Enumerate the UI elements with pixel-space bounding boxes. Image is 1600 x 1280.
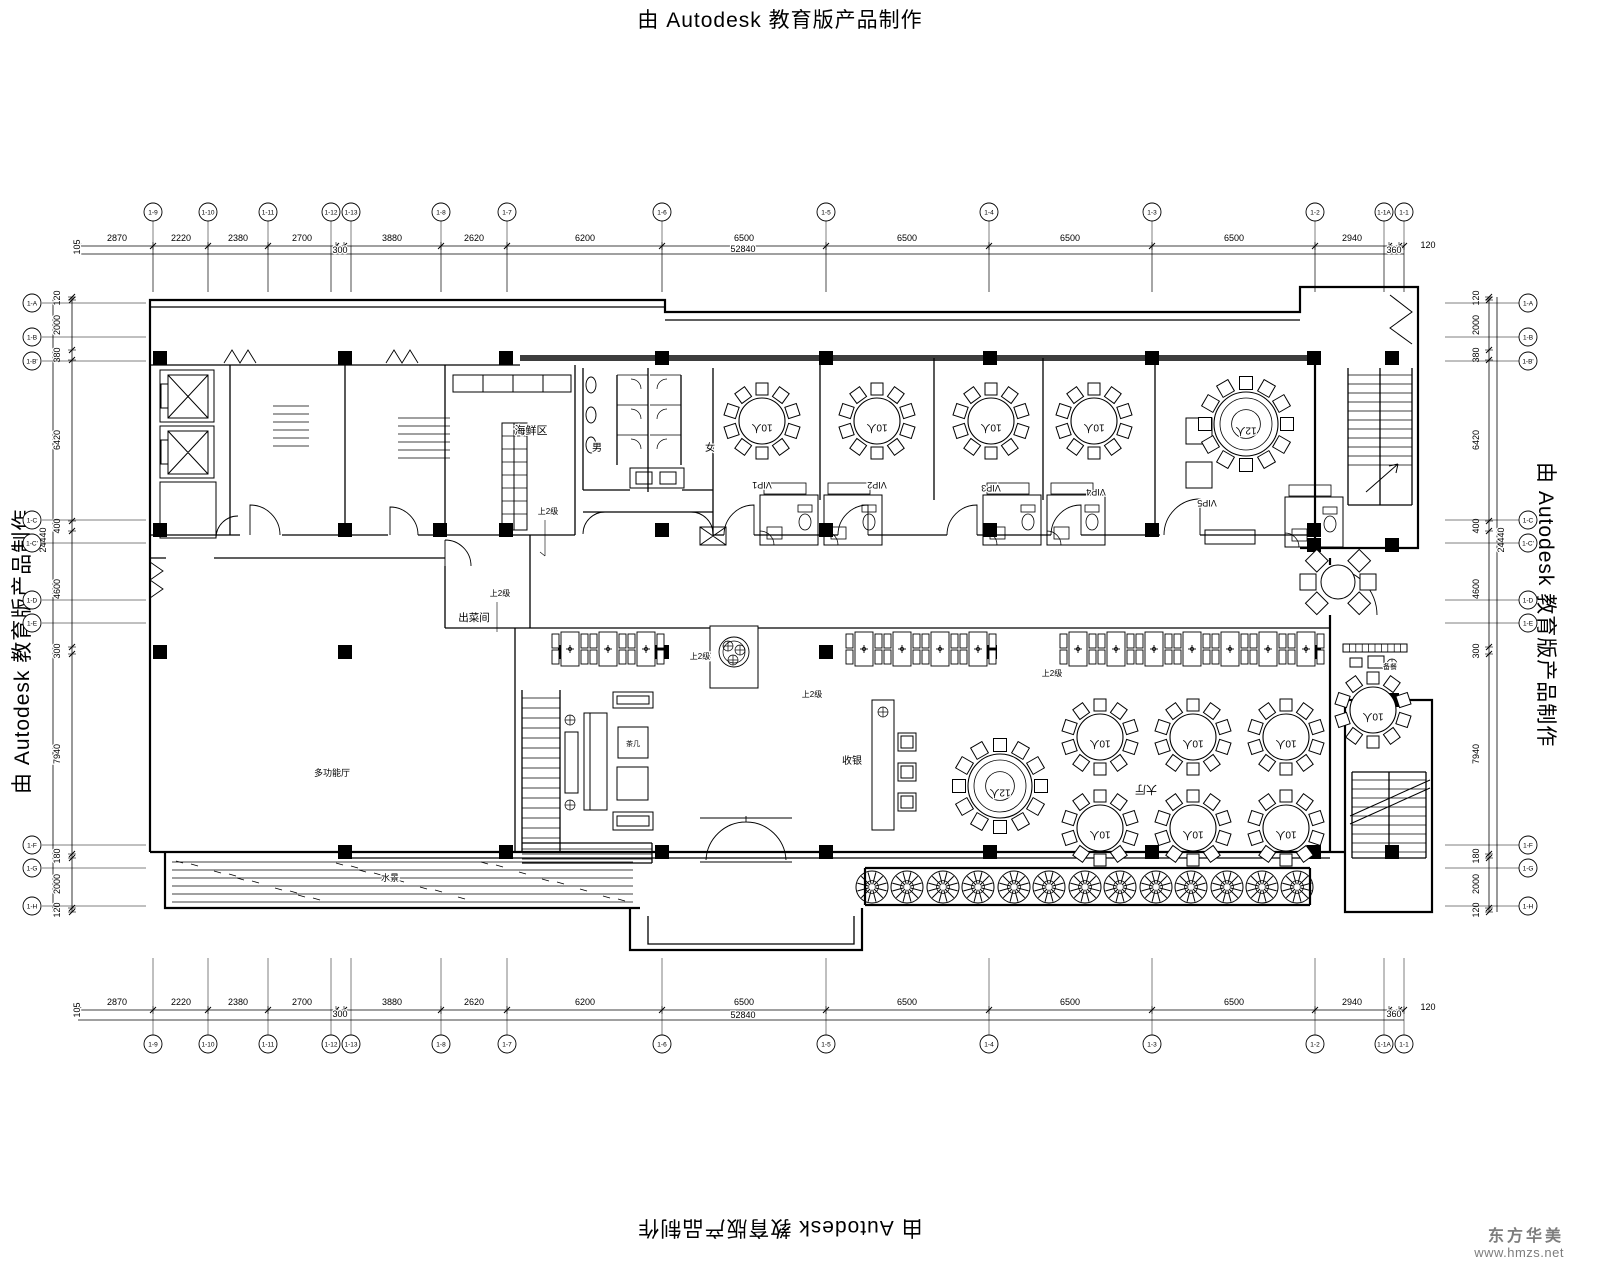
chair (850, 387, 867, 404)
room-label: VIP5 (1197, 498, 1217, 508)
dim-label: 2000 (1471, 874, 1481, 894)
chair (1155, 720, 1170, 735)
chair (1027, 757, 1045, 775)
axis-bubble-label: 1-F (1523, 842, 1533, 849)
axis-bubble-label: 1-8 (436, 1041, 446, 1048)
chair (1396, 712, 1411, 727)
dim-label: 120 (1420, 1002, 1435, 1012)
tree-icon (892, 888, 904, 891)
tree-icon (1223, 872, 1226, 884)
dim-label: 6500 (1060, 997, 1080, 1007)
room-label: VIP2 (867, 480, 887, 490)
tree-icon (1141, 883, 1153, 886)
room-label: 水景 (381, 872, 399, 883)
tree-icon (1079, 881, 1092, 894)
dim-label: 2000 (1471, 315, 1481, 335)
tree-icon (1086, 890, 1089, 902)
room-label: 出菜间 (458, 611, 490, 624)
chair (964, 439, 981, 456)
chair (1012, 742, 1030, 760)
tree-icon (946, 888, 958, 891)
chair (1110, 794, 1127, 811)
chair (1296, 703, 1313, 720)
chair (850, 439, 867, 456)
tree-icon (1293, 890, 1296, 902)
room-label: 上2级 (690, 651, 710, 661)
tree-icon (1105, 883, 1117, 886)
chair (1117, 404, 1132, 419)
chair (1187, 763, 1199, 775)
tree-icon (1212, 883, 1224, 886)
tree-icon (981, 888, 993, 891)
tree-icon (1016, 876, 1025, 885)
room-label: 男 (592, 442, 602, 454)
toilet-icon (1323, 507, 1337, 514)
cad-sheet-page: { "watermarks": { "top": "由 Autodesk 教育版… (0, 0, 1600, 1280)
column (1307, 351, 1321, 365)
tree-icon (1121, 890, 1124, 902)
column (153, 645, 167, 659)
tree-icon (1050, 890, 1053, 902)
water-ripple (351, 866, 358, 868)
tree-icon (1010, 872, 1013, 884)
tree-icon (903, 890, 906, 902)
tree-icon (1050, 872, 1053, 884)
tree-icon (1230, 888, 1242, 891)
table-capacity-label: 12人 (1235, 425, 1256, 437)
tree-icon (1187, 872, 1190, 884)
tree-icon (1123, 888, 1135, 891)
booth-bench (1279, 650, 1286, 664)
tree-icon (1157, 890, 1160, 902)
dim-total-label: 24440 (1496, 527, 1506, 552)
chair (1062, 830, 1077, 845)
room-label: VIP3 (981, 483, 1001, 493)
dim-label: 120 (1420, 240, 1435, 250)
axis-bubble-label: 1-12 (324, 1041, 337, 1048)
booth-bench (875, 634, 882, 648)
chair (785, 423, 800, 438)
toilet-icon (1086, 514, 1098, 530)
dim-label: 6500 (734, 233, 754, 243)
booth-bench (1212, 634, 1219, 648)
tree-icon (1152, 890, 1155, 902)
booth-bench (960, 634, 967, 648)
tree-icon (892, 883, 904, 886)
chair (1280, 699, 1292, 711)
booth-bench (1174, 634, 1181, 648)
axis-bubble-label: 1-8 (436, 209, 446, 216)
tree-icon (1265, 883, 1277, 886)
axis-bubble-label: 1-13 (344, 209, 357, 216)
booth-bench (1060, 634, 1067, 648)
axis-bubble-label: 1-11 (262, 209, 275, 216)
chair (1259, 794, 1276, 811)
tree-icon (1081, 872, 1084, 884)
dining-table (1170, 805, 1216, 851)
tree-icon (1033, 871, 1065, 903)
chair (1110, 703, 1127, 720)
axis-bubble-label: 1-11 (262, 1041, 275, 1048)
stall-door (631, 409, 641, 419)
toilet-icon (1324, 516, 1336, 532)
chair (1104, 387, 1121, 404)
chair (839, 404, 854, 419)
dim-label: 120 (1471, 902, 1481, 917)
axis-bubble-label: 1-D (1523, 597, 1534, 604)
axis-bubble-label: 1-A (27, 300, 38, 307)
dim-label: 180 (52, 848, 62, 863)
chair (1217, 451, 1235, 469)
tree-icon (1192, 890, 1195, 902)
chair (971, 742, 989, 760)
chair (1073, 846, 1090, 863)
chair (1166, 755, 1183, 772)
chair (1367, 672, 1379, 684)
dining-table (739, 398, 785, 444)
tree-icon (1282, 888, 1294, 891)
room-label: 海鲜区 (515, 423, 548, 437)
toilet-icon (1021, 505, 1035, 512)
axis-bubble-label: 1-7 (502, 1041, 512, 1048)
dim-label: 7940 (52, 744, 62, 764)
booth-bench (1136, 634, 1143, 648)
dining-table (1350, 687, 1396, 733)
dining-table (1214, 392, 1278, 456)
axis-bubble-label: 1-1 (1399, 209, 1409, 216)
axis-bubble-label: 1-H (1523, 903, 1534, 910)
chair (1166, 703, 1183, 720)
booth-bench (1250, 650, 1257, 664)
column (499, 523, 513, 537)
axis-bubble-label: 1-1 (1399, 1041, 1409, 1048)
chair (1012, 813, 1030, 831)
tree-icon (1069, 871, 1101, 903)
tree-icon (1052, 888, 1064, 891)
chair (1123, 739, 1138, 754)
dim-label: 2380 (228, 997, 248, 1007)
chair (1187, 699, 1199, 711)
dim-label: 400 (1471, 518, 1481, 533)
booth-bench (989, 634, 996, 648)
chair (1001, 439, 1018, 456)
water-ripple (290, 891, 297, 893)
chair (1203, 703, 1220, 720)
chair (1335, 693, 1350, 708)
waiting-table (1321, 565, 1355, 599)
tree-icon (1034, 888, 1046, 891)
tree-icon (1003, 889, 1012, 898)
booth-bench (619, 650, 626, 664)
room-label: VIP1 (752, 480, 772, 490)
booth-bench (1127, 650, 1134, 664)
heavy-wall (520, 355, 1310, 361)
tree-icon (1051, 876, 1060, 885)
dim-label: 300 (332, 1009, 347, 1019)
tree-icon (1152, 872, 1155, 884)
dim-label: 2940 (1342, 997, 1362, 1007)
chair (1088, 447, 1100, 459)
dim-label: 2220 (171, 997, 191, 1007)
tree-icon (1017, 888, 1029, 891)
chair (900, 404, 915, 419)
booth-bench (913, 650, 920, 664)
dim-label: 300 (332, 245, 347, 255)
axis-bubble-label: 1-D (27, 597, 38, 604)
dim-label: 6500 (734, 997, 754, 1007)
chair (1062, 811, 1077, 826)
tree-icon (1109, 876, 1118, 885)
axis-bubble-label: 1-3 (1147, 209, 1157, 216)
dim-label: 2380 (228, 233, 248, 243)
tree-icon (1281, 871, 1313, 903)
toilet-icon (1085, 505, 1099, 512)
water-ripple (374, 873, 381, 875)
dim-label: 380 (52, 347, 62, 362)
dim-label: 3880 (382, 997, 402, 1007)
tree-icon (1293, 872, 1296, 884)
water-ripple (252, 881, 259, 883)
dim-label: 120 (52, 902, 62, 917)
dim-label: 6200 (575, 997, 595, 1007)
tree-icon (1299, 876, 1308, 885)
tree-icon (1038, 889, 1047, 898)
tree-icon (980, 889, 989, 898)
chair (994, 821, 1007, 834)
booth-bench (951, 650, 958, 664)
tree-icon (1286, 876, 1295, 885)
chair (953, 423, 968, 438)
tree-icon (1264, 889, 1273, 898)
room-label: 上2级 (802, 689, 822, 699)
tree-icon (874, 889, 883, 898)
toilet-icon (798, 505, 812, 512)
room-label: 多功能厅 (314, 767, 350, 778)
booth-bench (1288, 650, 1295, 664)
column (1385, 538, 1399, 552)
column (819, 845, 833, 859)
water-ripple (435, 890, 442, 892)
tree-icon (1086, 872, 1089, 884)
dining-table (1263, 714, 1309, 760)
tree-icon (1265, 888, 1277, 891)
tree-icon (963, 883, 975, 886)
tree-icon (1175, 871, 1207, 903)
dim-label: 2870 (107, 997, 127, 1007)
tree-icon (939, 890, 942, 902)
axis-bubble-label: 1-F (27, 842, 37, 849)
stall-door (657, 379, 667, 389)
chair (756, 383, 768, 395)
tree-icon (896, 889, 905, 898)
tree-icon (927, 871, 959, 903)
tree-icon (974, 890, 977, 902)
axis-bubble-label: 1-C (1523, 517, 1534, 524)
tree-icon (1045, 872, 1048, 884)
room-label: 女 (705, 441, 715, 454)
booth-bench (1212, 650, 1219, 664)
tree-icon (1229, 889, 1238, 898)
column (1385, 351, 1399, 365)
tree-icon (873, 872, 876, 884)
axis-bubble-label: 1-C' (26, 540, 38, 547)
tree-icon (1251, 889, 1260, 898)
water-ripple (618, 899, 625, 901)
chair (1248, 739, 1263, 754)
chair (772, 439, 789, 456)
water-ripple (313, 898, 320, 900)
tree-icon (1017, 883, 1029, 886)
chair (1309, 720, 1324, 735)
chair (971, 813, 989, 831)
chair (1073, 794, 1090, 811)
booth-bench (657, 650, 664, 664)
booth-bench (913, 634, 920, 648)
chair (1202, 436, 1220, 454)
chair (1014, 423, 1029, 438)
chair (1062, 720, 1077, 735)
chair (724, 423, 739, 438)
tree-icon (1070, 883, 1082, 886)
booth-bench (1203, 650, 1210, 664)
room-label: 上2级 (1042, 668, 1062, 678)
axis-bubble-label: 1-B (1523, 334, 1533, 341)
tree-icon (1008, 881, 1021, 894)
axis-bubble-label: 1-1A (1377, 209, 1391, 216)
table-capacity-label: 10人 (1083, 422, 1104, 434)
water-ripple (542, 879, 549, 881)
table-capacity-label: 10人 (751, 422, 772, 434)
chair (1367, 736, 1379, 748)
tree-icon (1192, 872, 1195, 884)
booth-bench (619, 634, 626, 648)
dim-total-label: 52840 (730, 244, 755, 254)
tree-icon (1123, 883, 1135, 886)
toilet-icon (863, 514, 875, 530)
booth-bench (1089, 650, 1096, 664)
axis-bubble-label: 1-12 (324, 209, 337, 216)
axis-bubble-label: 1-A (1523, 300, 1534, 307)
chair (1110, 755, 1127, 772)
tree-icon (1258, 872, 1261, 884)
chair (1203, 794, 1220, 811)
dim-label: 360 (1386, 245, 1401, 255)
booth-bench (846, 650, 853, 664)
bathroom (983, 495, 1041, 545)
booth-bench (590, 650, 597, 664)
tree-icon (1043, 881, 1056, 894)
tree-icon (1145, 889, 1154, 898)
tree-icon (1016, 889, 1025, 898)
chair (1348, 592, 1371, 615)
dim-label: 360 (1386, 1009, 1401, 1019)
axis-bubble-label: 1-G (1523, 865, 1534, 872)
chair (1273, 395, 1291, 413)
column (338, 351, 352, 365)
column (983, 351, 997, 365)
chair (1203, 846, 1220, 863)
chair (1155, 811, 1170, 826)
tree-icon (1088, 883, 1100, 886)
chair (956, 757, 974, 775)
tree-icon (1010, 890, 1013, 902)
booth-bench (581, 634, 588, 648)
tree-icon (868, 890, 871, 902)
table-capacity-label: 10人 (1182, 829, 1203, 841)
chair (1240, 377, 1253, 390)
chair (1199, 418, 1212, 431)
dim-label: 120 (1471, 290, 1481, 305)
tree-icon (1109, 889, 1118, 898)
room-label: 大厅 (1135, 783, 1157, 797)
chair (756, 447, 768, 459)
booth-bench (884, 634, 891, 648)
tree-icon (981, 883, 993, 886)
tree-icon (1015, 890, 1018, 902)
booth-bench (1089, 634, 1096, 648)
axis-bubble-label: 1-2 (1310, 209, 1320, 216)
tree-icon (1247, 883, 1259, 886)
chair (724, 404, 739, 419)
dining-table (1071, 398, 1117, 444)
tree-icon (1145, 876, 1154, 885)
chair (871, 383, 883, 395)
dining-table (1170, 714, 1216, 760)
chair (1259, 846, 1276, 863)
tree-icon (910, 883, 922, 886)
table-capacity-label: 10人 (1362, 711, 1383, 723)
chair (1280, 854, 1292, 866)
tree-icon (1194, 883, 1206, 886)
tree-icon (1105, 888, 1117, 891)
chair (1104, 439, 1121, 456)
cabinet (1289, 485, 1331, 496)
dim-label: 6500 (1224, 233, 1244, 243)
chair (1202, 395, 1220, 413)
tree-icon (856, 871, 888, 903)
tree-icon (1157, 872, 1160, 884)
dining-table (1263, 805, 1309, 851)
chair (1035, 780, 1048, 793)
booth-bench (1203, 634, 1210, 648)
tree-icon (1299, 889, 1308, 898)
tree-icon (1223, 890, 1226, 902)
tree-icon (1230, 883, 1242, 886)
chair (1280, 763, 1292, 775)
axis-bubble-label: 1-C' (1522, 540, 1534, 547)
tree-icon (974, 872, 977, 884)
booth-bench (989, 650, 996, 664)
chair (985, 447, 997, 459)
column (1307, 538, 1321, 552)
chair (1383, 676, 1400, 693)
table-capacity-label: 10人 (1275, 738, 1296, 750)
tree-icon (932, 876, 941, 885)
tree-icon (999, 888, 1011, 891)
tree-icon (1187, 890, 1190, 902)
column (499, 845, 513, 859)
table-capacity-label: 12人 (989, 787, 1010, 799)
dim-label: 2220 (171, 233, 191, 243)
dining-table (854, 398, 900, 444)
tree-icon (1081, 890, 1084, 902)
chair (1056, 423, 1071, 438)
tree-icon (891, 871, 923, 903)
tree-icon (939, 872, 942, 884)
booth-bench (1241, 650, 1248, 664)
water-ripple (519, 872, 526, 874)
tree-icon (1116, 890, 1119, 902)
